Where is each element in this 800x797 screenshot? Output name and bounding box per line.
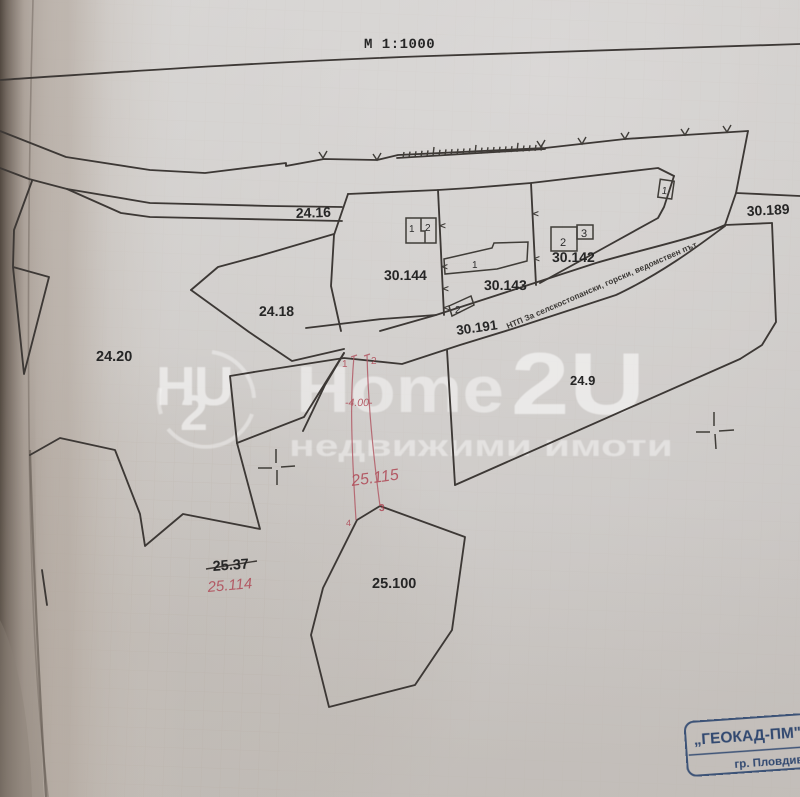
svg-text:30.143: 30.143 [484,277,527,293]
svg-text:4: 4 [346,518,351,528]
svg-text:недвижими имоти: недвижими имоти [289,430,673,463]
svg-text:24.20: 24.20 [96,349,132,365]
svg-text:25.100: 25.100 [372,576,416,592]
svg-text:1: 1 [409,224,415,235]
svg-text:<: < [534,254,540,265]
svg-text:2: 2 [560,237,566,249]
svg-text:U: U [194,355,234,417]
svg-text:3: 3 [379,503,385,514]
svg-text:<: < [443,284,449,295]
svg-text:1: 1 [342,359,348,370]
svg-text:30.142: 30.142 [552,249,595,265]
svg-text:30.189: 30.189 [746,201,790,219]
svg-text:2: 2 [371,356,377,367]
svg-text:24.16: 24.16 [296,204,332,221]
svg-text:30.144: 30.144 [384,267,427,283]
svg-text:<: < [440,221,446,232]
svg-text:1: 1 [472,260,478,271]
svg-text:2: 2 [425,223,431,234]
svg-text:24.18: 24.18 [259,303,294,319]
svg-text:-4.00-: -4.00- [345,397,373,409]
svg-text:3: 3 [581,228,587,240]
svg-text:М 1:1000: М 1:1000 [364,37,435,53]
svg-text:<: < [533,209,539,220]
svg-text:2: 2 [455,305,461,316]
svg-text:25.37: 25.37 [212,556,249,574]
svg-text:24.9: 24.9 [570,373,595,388]
